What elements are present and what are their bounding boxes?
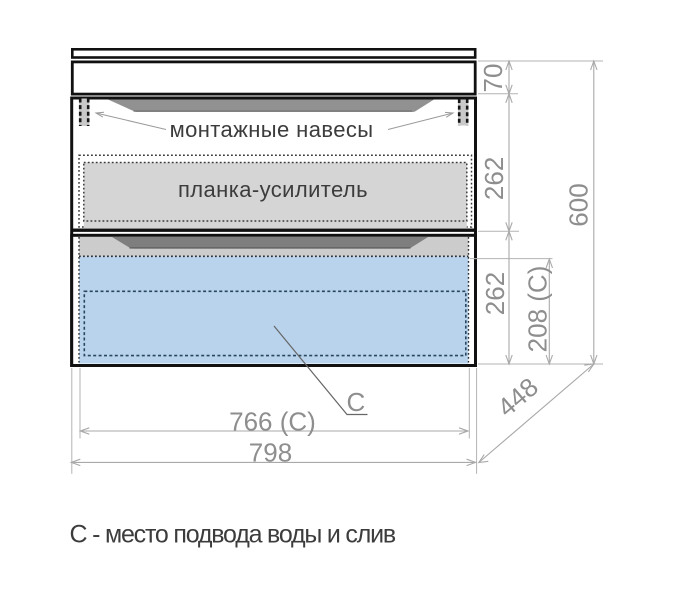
svg-text:262: 262 [479,157,509,200]
svg-text:600: 600 [564,183,594,226]
svg-text:планка-усилитель: планка-усилитель [178,177,368,202]
svg-text:монтажные навесы: монтажные навесы [170,117,374,142]
svg-text:262: 262 [480,272,510,315]
svg-text:C - место подвода воды и слив: C - место подвода воды и слив [70,521,396,549]
svg-text:C: C [347,387,366,417]
svg-text:766 (C): 766 (C) [229,407,316,437]
svg-text:798: 798 [249,438,292,468]
svg-text:208 (C): 208 (C) [522,266,552,353]
svg-text:70: 70 [478,64,508,93]
